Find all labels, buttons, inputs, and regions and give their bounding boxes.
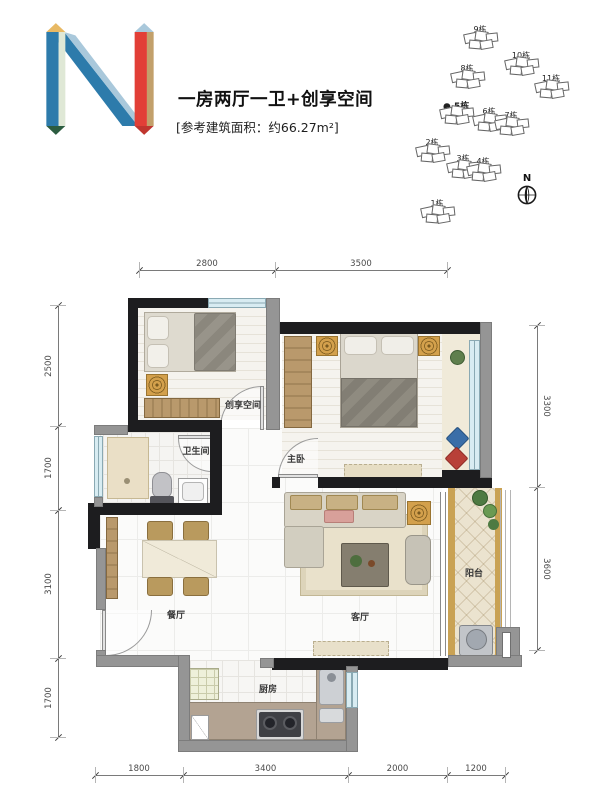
dim-line-bottom xyxy=(95,775,505,776)
dim-value: 1800 xyxy=(125,764,153,774)
dim-line-top xyxy=(139,270,447,271)
dim-value: 1700 xyxy=(44,454,54,482)
dim-ext xyxy=(529,650,545,651)
dim-value: 1700 xyxy=(44,684,54,712)
dim-ext xyxy=(275,262,276,278)
dim-ext xyxy=(50,510,66,511)
dim-value: 3500 xyxy=(347,259,375,269)
dim-value: 3400 xyxy=(252,764,280,774)
dimension-annotations: 2800350018003400200012002500170031001700… xyxy=(0,0,600,800)
dim-ext xyxy=(50,737,66,738)
dim-ext xyxy=(505,767,506,783)
dim-ext xyxy=(447,767,448,783)
dim-line-left xyxy=(58,305,59,737)
dim-value: 3300 xyxy=(541,392,551,420)
floorplan-page: 一房两厅一卫+创享空间 [参考建筑面积：约66.27m²] 9栋10栋8栋11栋… xyxy=(0,0,600,800)
dim-value: 3600 xyxy=(541,555,551,583)
dim-ext xyxy=(50,658,66,659)
dim-ext xyxy=(447,262,448,278)
dim-ext xyxy=(139,262,140,278)
dim-value: 2800 xyxy=(193,259,221,269)
dim-value: 1200 xyxy=(462,764,490,774)
dim-ext xyxy=(50,305,66,306)
dim-ext xyxy=(348,767,349,783)
dim-ext xyxy=(529,325,545,326)
dim-ext xyxy=(529,487,545,488)
dim-ext xyxy=(50,426,66,427)
dim-value: 3100 xyxy=(44,570,54,598)
dim-ext xyxy=(183,767,184,783)
dim-ext xyxy=(95,767,96,783)
dim-value: 2500 xyxy=(44,352,54,380)
dim-value: 2000 xyxy=(384,764,412,774)
